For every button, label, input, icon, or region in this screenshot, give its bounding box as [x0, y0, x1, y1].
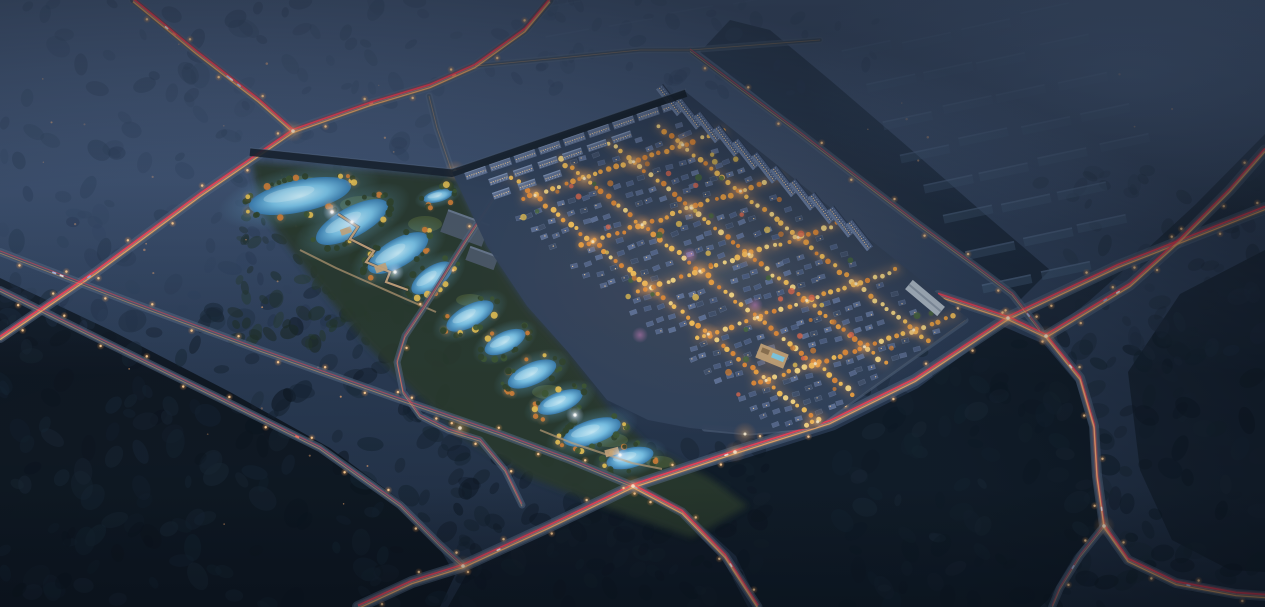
atmosphere-layer: [0, 0, 1265, 607]
aerial-rendering: [0, 0, 1265, 607]
scene-svg: [0, 0, 1265, 607]
